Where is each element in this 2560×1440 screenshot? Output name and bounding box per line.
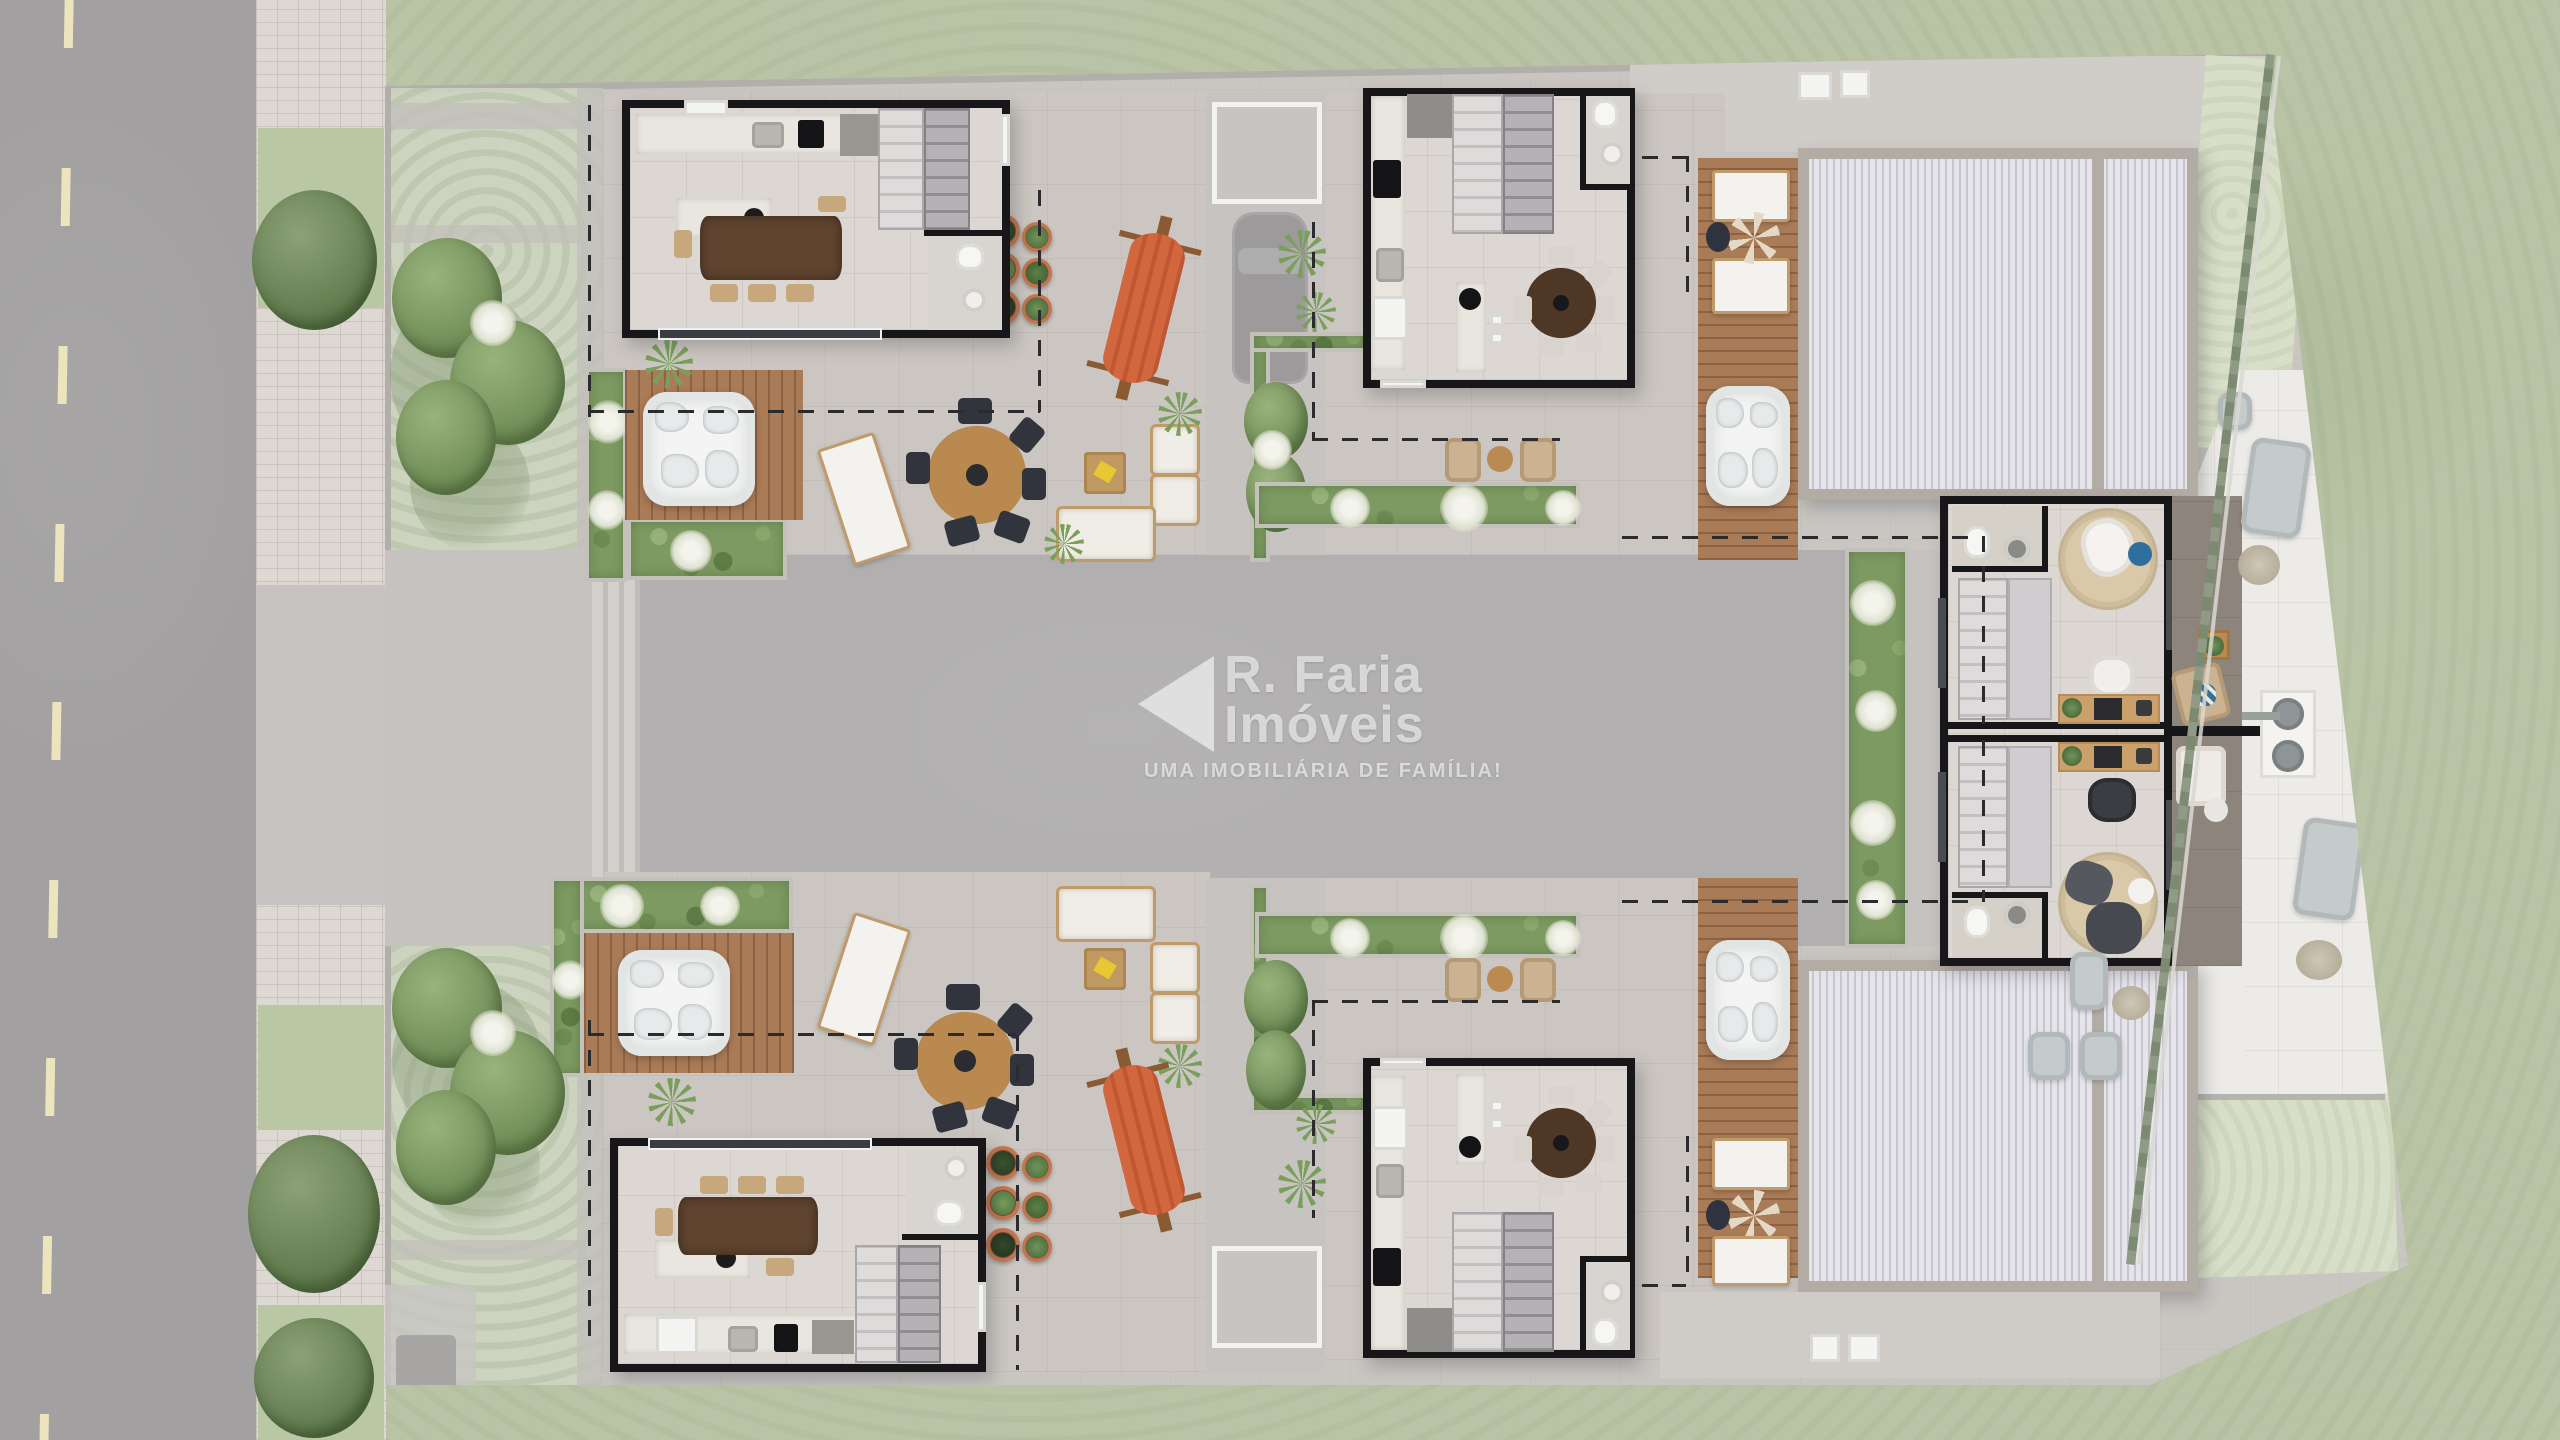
dining-chair: [655, 1208, 673, 1236]
dining-chair: [710, 284, 738, 302]
desk-plant: [2062, 746, 2082, 766]
dining-chair: [1576, 1174, 1602, 1192]
window-slot: [1938, 598, 1946, 688]
driveway-crossing: [256, 585, 386, 905]
toilet: [934, 1200, 964, 1226]
bathroom-sink: [944, 1156, 968, 1180]
laptop: [2094, 698, 2122, 720]
projection-dashed-line: [1312, 438, 1560, 441]
fan-hub: [1706, 222, 1730, 252]
island-cooktop: [1459, 288, 1481, 310]
door-opening: [1380, 1058, 1426, 1066]
stool: [1490, 332, 1504, 344]
projection-dashed-line: [1038, 190, 1041, 412]
kitchen-cabinet: [1407, 1308, 1453, 1352]
staircase: [855, 1245, 898, 1363]
stair-landing: [2008, 746, 2052, 888]
staircase: [878, 108, 924, 230]
outdoor-sofa: [1056, 886, 1156, 942]
garden-armchair: [2080, 1032, 2122, 1080]
courtyard-hedge: [1255, 482, 1580, 528]
entry-canopy-top: [1212, 102, 1322, 204]
bathroom-sink: [962, 288, 986, 312]
dry-plant: [2296, 940, 2342, 980]
armchair: [1150, 992, 1200, 1044]
unit-divider-wall: [1940, 735, 2172, 742]
palm-plant: [648, 1078, 696, 1126]
kitchen-sink: [1376, 1164, 1404, 1198]
dining-chair: [748, 284, 776, 302]
dining-chair: [1596, 296, 1614, 322]
watermark: R. Faria Imóveis UMA IMOBILIÁRIA DE FAMÍ…: [1128, 648, 1458, 798]
staircase: [1503, 94, 1554, 234]
projection-dashed-line: [588, 105, 591, 417]
kitchen-sink: [1376, 248, 1404, 282]
dining-chair: [1548, 246, 1574, 264]
outdoor-chair: [894, 1038, 918, 1070]
projection-dashed-line: [1686, 156, 1689, 306]
planter-flowers: [670, 530, 712, 572]
office-chair: [2088, 778, 2136, 822]
planter-flowers: [1850, 800, 1896, 846]
kitchen-sink: [728, 1326, 758, 1352]
palm-plant: [1278, 1160, 1326, 1208]
corrugated-roof-top: [1798, 148, 2198, 500]
fan-hub: [1706, 1200, 1730, 1230]
ghost-patio-table: [396, 1335, 456, 1395]
projection-dashed-line: [588, 1033, 1016, 1036]
projection-dashed-line: [1016, 1035, 1019, 1370]
door-opening: [1000, 114, 1010, 166]
skylight: [1798, 72, 1832, 100]
projection-dashed-line: [588, 1020, 591, 1338]
hedge-flowers: [1330, 918, 1370, 958]
roof-seam: [2092, 148, 2104, 500]
lounge-chair: [2086, 902, 2142, 954]
stool: [1490, 1118, 1504, 1130]
dining-chair: [766, 1258, 794, 1276]
planter-bush: [1244, 960, 1308, 1038]
planter-flowers: [588, 490, 626, 530]
dining-chair: [1538, 338, 1564, 356]
watermark-brand-line2: Imóveis: [1224, 700, 1425, 750]
palm-plant: [1296, 292, 1336, 332]
dining-chair: [738, 1176, 766, 1194]
entry-canopy-bottom: [1212, 1246, 1322, 1348]
hedge-flowers: [470, 1010, 516, 1056]
side-table: [1487, 446, 1513, 472]
planter-flowers: [700, 886, 740, 926]
lounge-chair: [1445, 958, 1481, 1002]
island-cooktop: [1459, 1136, 1481, 1158]
bathroom-sink: [2004, 902, 2030, 928]
armchair: [1150, 942, 1200, 994]
table-centerpiece: [1553, 295, 1569, 311]
bathroom-sink: [1600, 142, 1624, 166]
garden-sofa: [2070, 952, 2108, 1010]
sidewalk-grass-strip: [258, 1005, 384, 1130]
dining-chair: [1514, 296, 1532, 322]
dining-chair: [1548, 1086, 1574, 1104]
watermark-brand-line1: R. Faria: [1224, 650, 1425, 700]
dry-plant: [2112, 986, 2150, 1020]
rear-band-top: [1630, 56, 2280, 152]
stair-landing: [2008, 578, 2052, 720]
planter-flowers: [1855, 690, 1897, 732]
stool: [1490, 314, 1504, 326]
ceiling-fan: [1728, 212, 1780, 264]
lounge-chair: [1445, 438, 1481, 482]
hedge-flowers: [470, 300, 516, 346]
palm-plant: [1278, 230, 1326, 278]
dining-table: [700, 216, 842, 280]
glass-sliding-door: [660, 330, 880, 338]
street: [0, 0, 256, 1440]
table-centerpiece: [1553, 1135, 1569, 1151]
projection-dashed-line: [1686, 1136, 1689, 1286]
dining-chair: [1576, 334, 1602, 352]
sun-lounger: [1712, 258, 1790, 314]
bathroom-sink: [1600, 1280, 1624, 1304]
door-opening: [976, 1282, 986, 1332]
toilet: [1592, 1318, 1618, 1346]
bbq-grill: [2272, 740, 2304, 772]
side-table: [2204, 798, 2228, 822]
ghost-garden-path: [391, 225, 581, 243]
refrigerator: [1372, 1106, 1408, 1150]
dining-chair: [700, 1176, 728, 1194]
dining-chair: [786, 284, 814, 302]
projection-dashed-line: [1312, 1000, 1560, 1003]
side-table: [1487, 966, 1513, 992]
kitchen-window: [656, 1316, 698, 1354]
outdoor-chair: [1010, 1054, 1034, 1086]
hedge-flowers: [1440, 484, 1488, 532]
planter-flowers: [1252, 430, 1292, 470]
palm-plant: [1044, 524, 1084, 564]
skylight: [1848, 1334, 1880, 1362]
armchair: [1150, 474, 1200, 526]
staircase: [1452, 94, 1503, 234]
stool: [1490, 1100, 1504, 1112]
refrigerator: [1372, 296, 1408, 340]
sun-lounger: [1712, 1236, 1790, 1286]
ghost-garden-path: [391, 1240, 586, 1260]
hot-tub: [1706, 940, 1790, 1060]
projection-dashed-line: [1312, 1000, 1315, 1218]
skylight: [1810, 1334, 1840, 1362]
staircase: [1452, 1212, 1503, 1352]
deck-planter: [550, 877, 793, 933]
ceiling-fan: [1728, 1190, 1780, 1242]
outdoor-chair: [946, 984, 980, 1010]
rear-band-bottom: [1660, 1292, 2160, 1378]
kitchen-cabinet: [812, 1320, 854, 1354]
hedge-flowers: [1330, 488, 1370, 528]
glass-sliding-door: [650, 1140, 870, 1148]
floorplan-render: R. Faria Imóveis UMA IMOBILIÁRIA DE FAMÍ…: [0, 0, 2560, 1440]
garden-hedge: [396, 1090, 496, 1205]
street-tree: [252, 190, 377, 330]
window-slot: [1938, 772, 1946, 862]
dining-chair: [776, 1176, 804, 1194]
counter-pass: [2242, 712, 2280, 720]
toilet: [1964, 526, 1990, 558]
projection-dashed-line: [588, 410, 1040, 413]
watermark-brand: R. Faria Imóveis: [1224, 650, 1425, 750]
dining-chair: [1596, 1136, 1614, 1162]
projection-dashed-line: [1622, 536, 1982, 539]
planter-flowers: [552, 960, 588, 1000]
staircase: [898, 1245, 941, 1363]
skylight: [1840, 70, 1870, 98]
terrace-planter: [1250, 332, 1372, 352]
projection-dashed-line: [1642, 156, 1686, 159]
projection-dashed-line: [1982, 740, 1985, 902]
kitchen-cabinet: [1407, 94, 1453, 138]
desk-plant: [2062, 698, 2082, 718]
bathroom-sink: [2004, 536, 2030, 562]
cooktop: [798, 120, 824, 148]
dining-chair: [1514, 1136, 1532, 1162]
dining-table: [678, 1197, 818, 1255]
planter-flowers: [588, 400, 628, 444]
table-centerpiece: [954, 1050, 976, 1072]
office-chair: [2090, 656, 2134, 696]
white-ottoman: [2128, 878, 2154, 904]
outdoor-chair: [1022, 468, 1046, 500]
lounge-chair: [1520, 438, 1556, 482]
dining-chair: [818, 196, 846, 212]
watermark-tagline: UMA IMOBILIÁRIA DE FAMÍLIA!: [1144, 760, 1503, 783]
cooktop: [1373, 160, 1401, 198]
blue-pillow: [2128, 542, 2152, 566]
dining-chair: [674, 230, 692, 258]
hedge-flowers: [1545, 490, 1581, 526]
sun-lounger: [1712, 1138, 1790, 1190]
hot-tub: [1706, 386, 1790, 506]
projection-dashed-line: [1312, 222, 1315, 440]
lounge-chair: [1520, 958, 1556, 1002]
staircase: [924, 108, 970, 230]
table-centerpiece: [966, 464, 988, 486]
toilet: [1964, 906, 1990, 938]
laptop: [2094, 746, 2122, 768]
toilet: [1592, 100, 1618, 128]
ghost-garden-path: [391, 103, 591, 129]
kitchen-cabinet: [840, 114, 882, 156]
planter-flowers: [1850, 580, 1896, 626]
toilet: [956, 244, 984, 270]
street-tree: [248, 1135, 380, 1293]
kitchen-sink: [752, 122, 784, 148]
garden-armchair: [2028, 1032, 2070, 1080]
street-tree: [254, 1318, 374, 1438]
dry-plant: [2238, 545, 2280, 585]
hedge-flowers: [1440, 914, 1488, 962]
desk-phone: [2136, 748, 2152, 764]
courtyard-hedge: [1255, 912, 1580, 958]
palm-plant: [645, 340, 693, 388]
watermark-logo-triangle-icon: [1138, 656, 1214, 752]
hedge-flowers: [1545, 920, 1581, 956]
planter-bush: [1246, 1030, 1306, 1110]
cooktop: [1373, 1248, 1401, 1286]
dining-chair: [1538, 1178, 1564, 1196]
cooktop: [774, 1324, 798, 1352]
palm-plant: [1296, 1104, 1336, 1144]
kitchen-window: [684, 100, 728, 116]
hot-tub: [618, 950, 730, 1056]
staircase: [1503, 1212, 1554, 1352]
projection-dashed-line: [1622, 900, 1982, 903]
planter-flowers: [600, 884, 644, 928]
projection-dashed-line: [1982, 536, 1985, 724]
projection-dashed-line: [1642, 1284, 1686, 1287]
garden-hedge: [396, 380, 496, 495]
door-opening: [1380, 380, 1426, 388]
outdoor-chair: [906, 452, 930, 484]
desk-phone: [2136, 700, 2152, 716]
